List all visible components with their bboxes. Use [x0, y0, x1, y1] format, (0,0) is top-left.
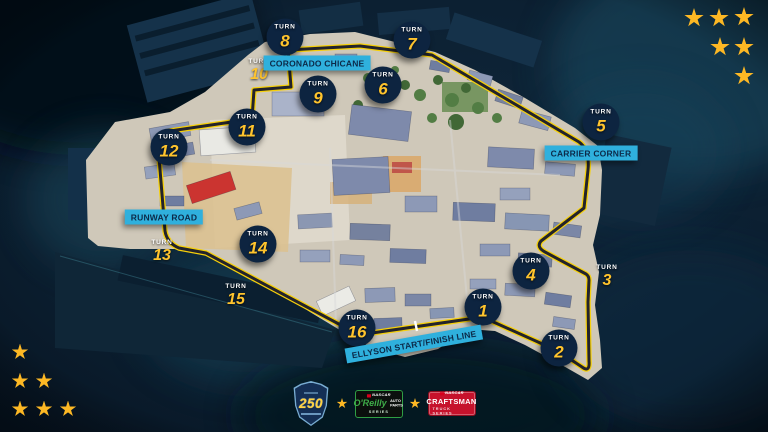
turn-marker-12: TURN12	[151, 129, 188, 166]
turn-marker-8: TURN8	[267, 19, 304, 56]
turn-word-label: TURN	[274, 25, 295, 32]
star-icon-top-right	[734, 7, 754, 27]
turn-marker-2: TURN2	[541, 330, 578, 367]
nascar-craftsman-truck-series-logo: NASCAR CRAFTSMAN TRUCK SERIES	[428, 391, 476, 416]
map-overlay: TURN1TURN2TURN3TURN4TURN5TURN6TURN7TURN8…	[0, 0, 768, 432]
race-map: TURN1TURN2TURN3TURN4TURN5TURN6TURN7TURN8…	[0, 0, 768, 432]
badge-rule	[301, 413, 321, 415]
turn-number: 1	[478, 302, 487, 319]
turn-number: 13	[153, 248, 171, 264]
turn-word-label: TURN	[472, 295, 493, 302]
star-icon-top-right	[709, 8, 729, 28]
turn-marker-6: TURN6	[365, 67, 402, 104]
track-label-runway-road: RUNWAY ROAD	[125, 210, 203, 225]
turn-number: 16	[348, 323, 367, 340]
star-icon-top-right	[734, 66, 754, 86]
turn-marker-4: TURN4	[513, 253, 550, 290]
track-label-coronado-chicane: CORONADO CHICANE	[264, 56, 371, 71]
turn-marker-14: TURN14	[240, 226, 277, 263]
turn-word-label: TURN	[346, 316, 367, 323]
badge-rule	[304, 392, 318, 394]
star-icon-bottom-left	[12, 344, 29, 361]
turn-marker-9: TURN9	[300, 76, 337, 113]
turn-marker-15: TURN15	[218, 279, 255, 313]
star-icon-top-right	[710, 37, 730, 57]
turn-marker-11: TURN11	[229, 109, 266, 146]
series-word: SERIES	[368, 410, 388, 414]
turn-number: 14	[249, 239, 268, 256]
turn-word-label: TURN	[236, 115, 257, 122]
turn-marker-13: TURN13	[144, 235, 181, 269]
turn-word-label: TURN	[548, 336, 569, 343]
track-label-carrier-corner: CARRIER CORNER	[545, 146, 638, 161]
turn-marker-1: TURN1	[465, 289, 502, 326]
nascar-oreilly-series-logo: NASCAR O'Reilly AUTO PARTS SERIES	[355, 390, 403, 418]
nascar-wordmark: NASCAR	[440, 392, 464, 396]
turn-number: 3	[603, 273, 612, 289]
turn-number: 7	[407, 35, 416, 52]
turn-word-label: TURN	[151, 240, 172, 247]
nascar-wordmark: NASCAR	[367, 393, 391, 397]
turn-marker-16: TURN16	[339, 310, 376, 347]
oreilly-brand: O'Reilly	[353, 399, 386, 408]
turn-number: 6	[378, 80, 387, 97]
craftsman-brand: CRAFTSMAN	[426, 398, 476, 406]
turn-word-label: TURN	[307, 82, 328, 89]
footer-logos: 250 NASCAR O'Reilly AUTO PARTS SERIES NA…	[0, 381, 768, 426]
turn-word-label: TURN	[372, 73, 393, 80]
star-icon-top-right	[734, 37, 754, 57]
race-250-badge: 250	[293, 381, 330, 426]
turn-number: 2	[554, 343, 563, 360]
star-icon	[337, 398, 348, 409]
turn-word-label: TURN	[590, 110, 611, 117]
badge-number: 250	[299, 396, 323, 411]
star-icon-top-right	[684, 8, 704, 28]
turn-word-label: TURN	[158, 135, 179, 142]
turn-number: 8	[280, 32, 289, 49]
turn-number: 15	[227, 292, 245, 308]
turn-marker-7: TURN7	[394, 22, 431, 59]
oreilly-auto-parts: AUTO PARTS	[390, 400, 403, 408]
race-250-badge-face: 250	[294, 383, 328, 425]
turn-word-label: TURN	[247, 232, 268, 239]
turn-marker-5: TURN5	[583, 104, 620, 141]
turn-word-label: TURN	[520, 259, 541, 266]
turn-number: 9	[313, 89, 322, 106]
turn-word-label: TURN	[596, 265, 617, 272]
turn-number: 5	[596, 117, 605, 134]
turn-number: 11	[238, 122, 256, 139]
star-icon	[410, 398, 421, 409]
turn-number: 4	[526, 266, 535, 283]
turn-number: 12	[160, 142, 179, 159]
turn-marker-3: TURN3	[589, 260, 626, 294]
oreilly-brand-row: O'Reilly AUTO PARTS	[353, 399, 403, 408]
series-word: TRUCK SERIES	[432, 407, 471, 415]
turn-word-label: TURN	[225, 284, 246, 291]
turn-word-label: TURN	[401, 28, 422, 35]
